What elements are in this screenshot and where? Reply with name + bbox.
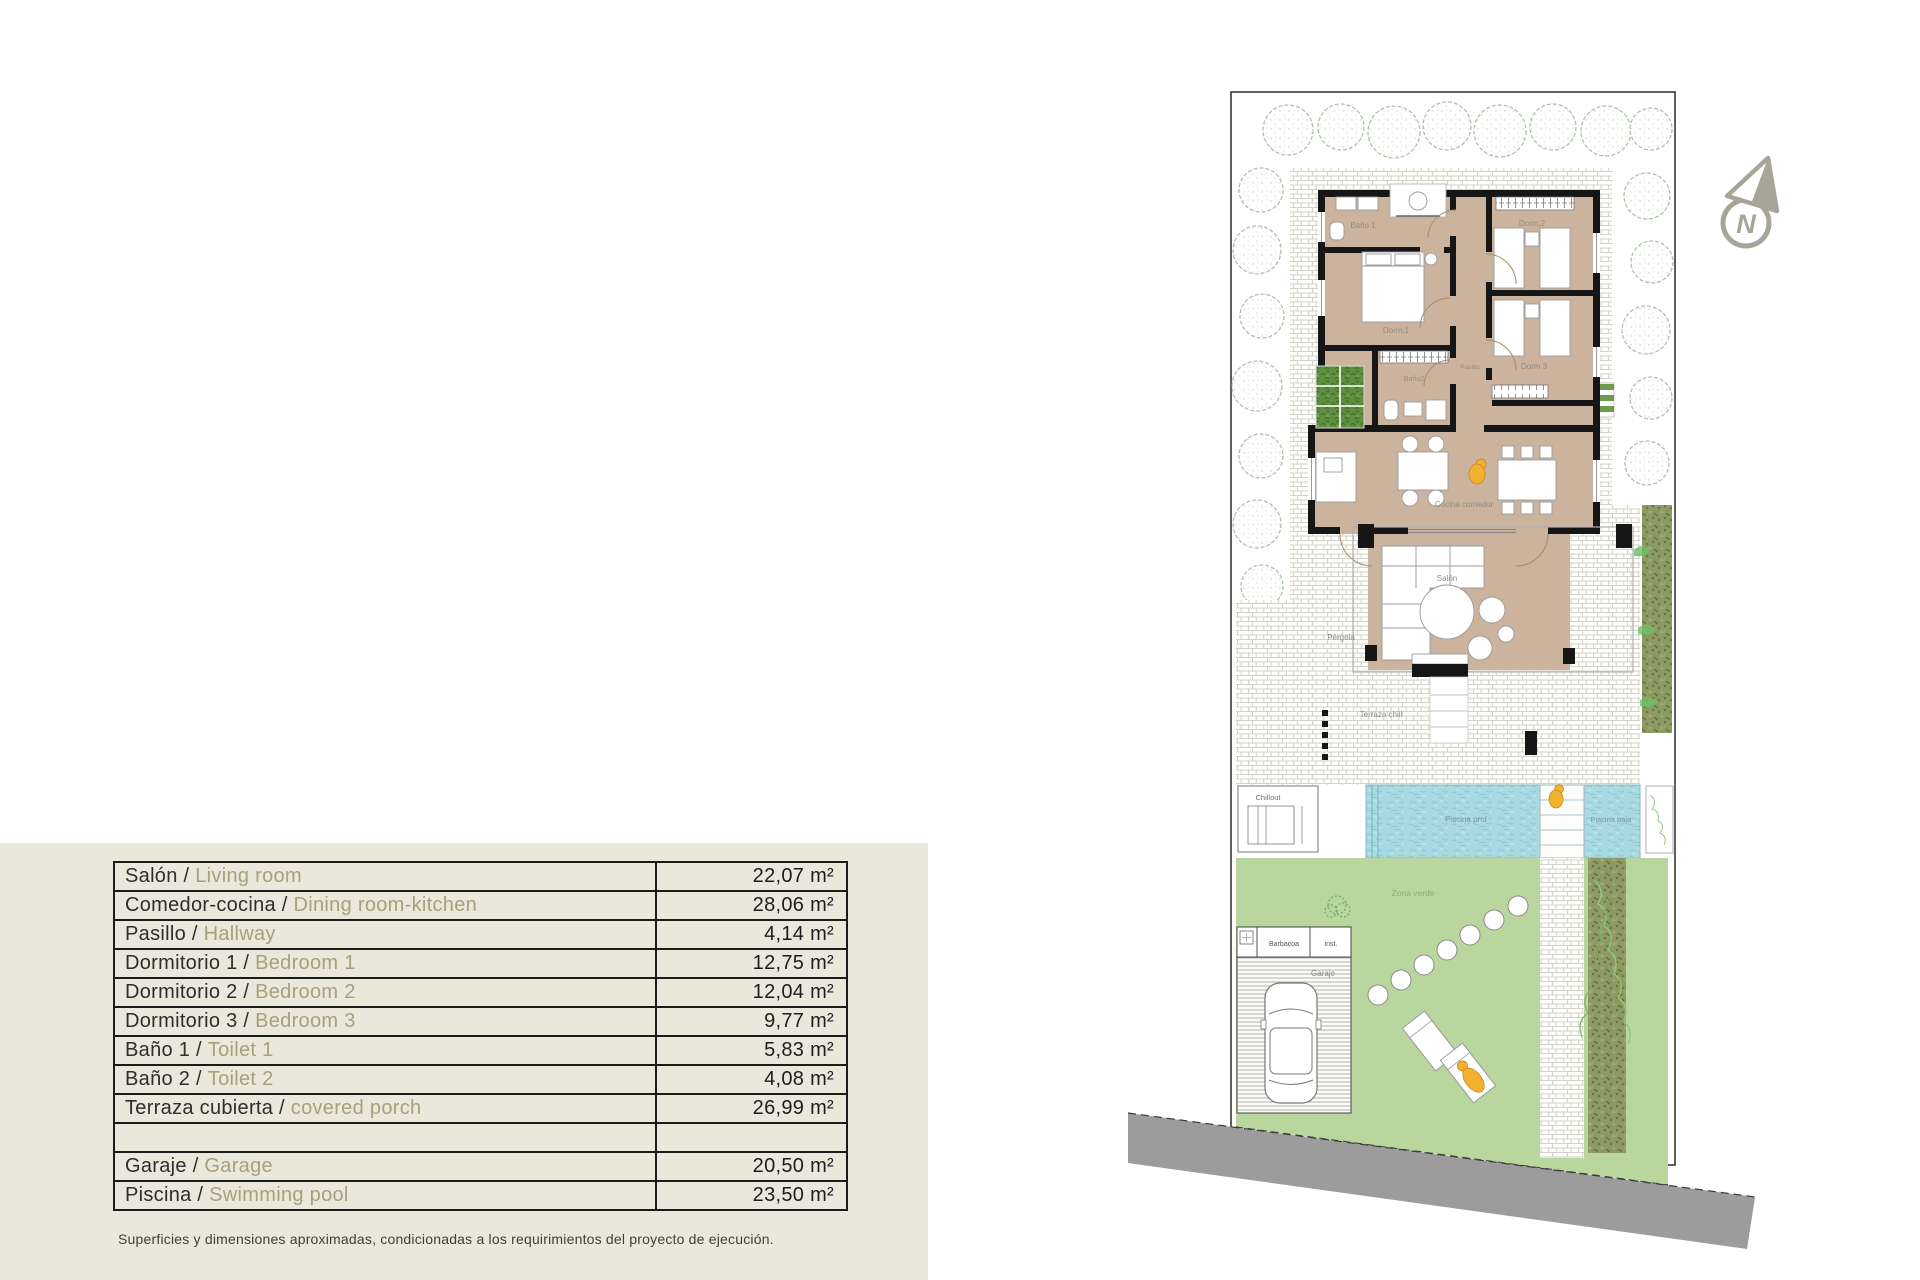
room-area-cell: 28,06 m² [657,892,846,919]
room-name-cell: Terraza cubierta / covered porch [115,1095,657,1122]
room-name-es: Dormitorio 2 [125,981,238,1004]
room-area-cell: 26,99 m² [657,1095,846,1122]
room-area: 12,75 m² [753,952,834,975]
room-area-cell [657,1122,846,1153]
room-name-es: Salón [125,865,178,888]
room-area: 22,07 m² [753,865,834,888]
room-area-cell: 4,08 m² [657,1066,846,1093]
table-spacer-row [113,1122,848,1153]
name-separator: / [238,981,256,1004]
entry-door [1390,184,1446,217]
north-arrow-icon: N [1723,158,1777,246]
room-name-en: Hallway [204,923,276,946]
room-name-es: Dormitorio 3 [125,1010,238,1033]
table-row: Piscina / Swimming pool 23,50 m² [113,1180,848,1211]
room-area: 5,83 m² [764,1039,834,1062]
room-area-cell: 12,04 m² [657,979,846,1006]
room-name-cell: Dormitorio 3 / Bedroom 3 [115,1008,657,1035]
room-name-en: Garage [204,1155,273,1178]
room-name-en: Bedroom 2 [255,981,356,1004]
room-name-cell: Garaje / Garage [115,1153,657,1180]
room-name-cell: Piscina / Swimming pool [115,1182,657,1209]
room-name-en: Living room [195,865,302,888]
label-bano2: Baño2 [1404,376,1424,383]
name-separator: / [178,865,196,888]
room-name-cell: Comedor-cocina / Dining room-kitchen [115,892,657,919]
label-terraza: Terraza chill [1360,710,1403,719]
garden-path [1540,858,1584,1158]
table-row: Garaje / Garage 20,50 m² [113,1151,848,1182]
porch-walkway [1430,677,1468,743]
room-name-es: Baño 1 [125,1039,190,1062]
site-plan: Baño 1 Dorm.2 Dorm.1 Pasillo Baño2 Dorm … [1100,60,1800,1270]
north-letter: N [1736,209,1756,239]
room-name-es: Garaje [125,1155,187,1178]
room-area-cell: 22,07 m² [657,863,846,890]
room-name-cell: Dormitorio 1 / Bedroom 1 [115,950,657,977]
garage-block [1237,927,1351,1113]
room-area: 9,77 m² [764,1010,834,1033]
label-salon: Salón [1437,574,1457,583]
room-name-en: Toilet 1 [208,1039,274,1062]
room-area-cell: 4,14 m² [657,921,846,948]
label-chillout: Chillout [1255,793,1281,802]
room-area: 4,14 m² [764,923,834,946]
room-name-cell: Baño 1 / Toilet 1 [115,1037,657,1064]
room-name-es: Baño 2 [125,1068,190,1091]
room-name-en: Dining room-kitchen [294,894,478,917]
room-name-en: Swimming pool [209,1184,349,1207]
room-name-cell: Dormitorio 2 / Bedroom 2 [115,979,657,1006]
name-separator: / [273,1097,291,1120]
label-piscina-prof: Piscina prof [1445,815,1488,824]
table-row: Dormitorio 3 / Bedroom 3 9,77 m² [113,1006,848,1037]
label-dorm2: Dorm.2 [1519,219,1546,228]
table-footnote: Superficies y dimensiones aproximadas, c… [118,1231,878,1247]
name-separator: / [190,1068,208,1091]
room-name-en: covered porch [291,1097,422,1120]
label-pasillo: Pasillo [1460,364,1480,371]
room-name-en: Toilet 2 [208,1068,274,1091]
name-separator: / [238,1010,256,1033]
table-row: Pasillo / Hallway 4,14 m² [113,919,848,950]
room-area: 23,50 m² [753,1184,834,1207]
label-pergola: Pérgola [1327,633,1355,642]
name-separator: / [187,1155,205,1178]
label-cocina: Cocina comedor [1435,500,1494,509]
areas-table: Salón / Living room 22,07 m² Comedor-coc… [113,861,848,1211]
room-area: 4,08 m² [764,1068,834,1091]
name-separator: / [186,923,204,946]
room-name-es: Comedor-cocina [125,894,276,917]
room-name-es: Terraza cubierta [125,1097,273,1120]
label-bano1: Baño 1 [1350,221,1376,230]
room-area-cell: 12,75 m² [657,950,846,977]
room-area: 20,50 m² [753,1155,834,1178]
name-separator: / [276,894,294,917]
room-name-en: Bedroom 3 [255,1010,356,1033]
label-zona-verde: Zona verde [1392,888,1435,898]
room-area-cell: 9,77 m² [657,1008,846,1035]
room-area: 26,99 m² [753,1097,834,1120]
room-name-cell [115,1122,657,1153]
name-separator: / [192,1184,210,1207]
table-row: Baño 1 / Toilet 1 5,83 m² [113,1035,848,1066]
car [1261,983,1321,1103]
room-area-cell: 5,83 m² [657,1037,846,1064]
label-inst: inst. [1325,941,1338,948]
wall-planter [1316,366,1364,428]
name-separator: / [238,952,256,975]
room-name-es: Dormitorio 1 [125,952,238,975]
plan-page: { "area_table": { "separator": " / ", "r… [0,0,1920,1280]
room-name-cell: Salón / Living room [115,863,657,890]
room-name-es: Piscina [125,1184,192,1207]
table-row: Baño 2 / Toilet 2 4,08 m² [113,1064,848,1095]
room-name-cell: Baño 2 / Toilet 2 [115,1066,657,1093]
label-dorm1: Dorm.1 [1383,326,1410,335]
room-name-en: Bedroom 1 [255,952,356,975]
label-garaje: Garaje [1311,969,1336,978]
room-area-cell: 20,50 m² [657,1153,846,1180]
table-row: Dormitorio 2 / Bedroom 2 12,04 m² [113,977,848,1008]
label-barbacoa: Barbacoa [1269,941,1299,948]
room-area-cell: 23,50 m² [657,1182,846,1209]
room-name-es: Pasillo [125,923,186,946]
name-separator: / [190,1039,208,1062]
room-area: 12,04 m² [753,981,834,1004]
room-name-cell: Pasillo / Hallway [115,921,657,948]
table-row: Dormitorio 1 / Bedroom 1 12,75 m² [113,948,848,979]
label-piscina-baja: Piscina baja [1591,815,1632,824]
room-area: 28,06 m² [753,894,834,917]
pool-side-planter [1646,786,1673,853]
table-row: Comedor-cocina / Dining room-kitchen 28,… [113,890,848,921]
label-dorm3: Dorm 3 [1521,362,1548,371]
table-row: Salón / Living room 22,07 m² [113,861,848,892]
table-row: Terraza cubierta / covered porch 26,99 m… [113,1093,848,1124]
